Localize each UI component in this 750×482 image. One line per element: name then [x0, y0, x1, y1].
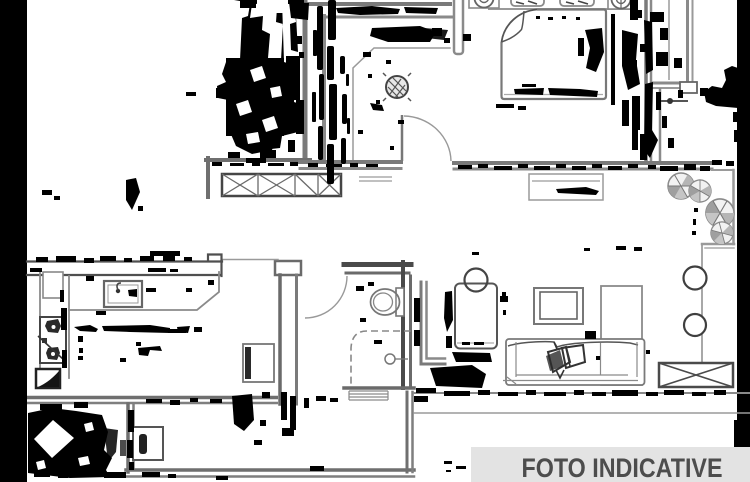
svg-text:FOTO INDICATIVE: FOTO INDICATIVE — [522, 453, 723, 482]
